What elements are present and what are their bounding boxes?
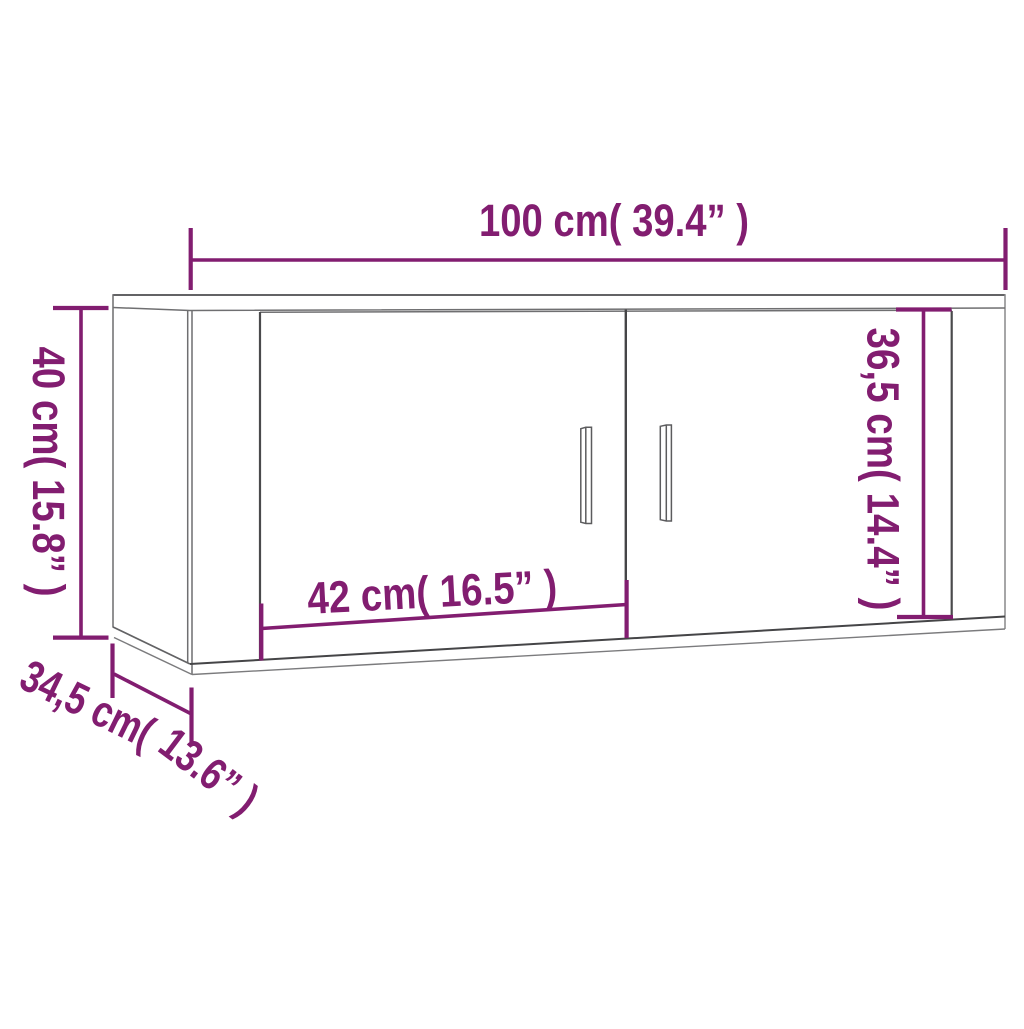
svg-text:40 cm( 15.8” ): 40 cm( 15.8” ) xyxy=(23,347,74,597)
svg-text:100 cm( 39.4” ): 100 cm( 39.4” ) xyxy=(479,195,749,246)
svg-text:36,5 cm( 14.4” ): 36,5 cm( 14.4” ) xyxy=(858,328,909,611)
